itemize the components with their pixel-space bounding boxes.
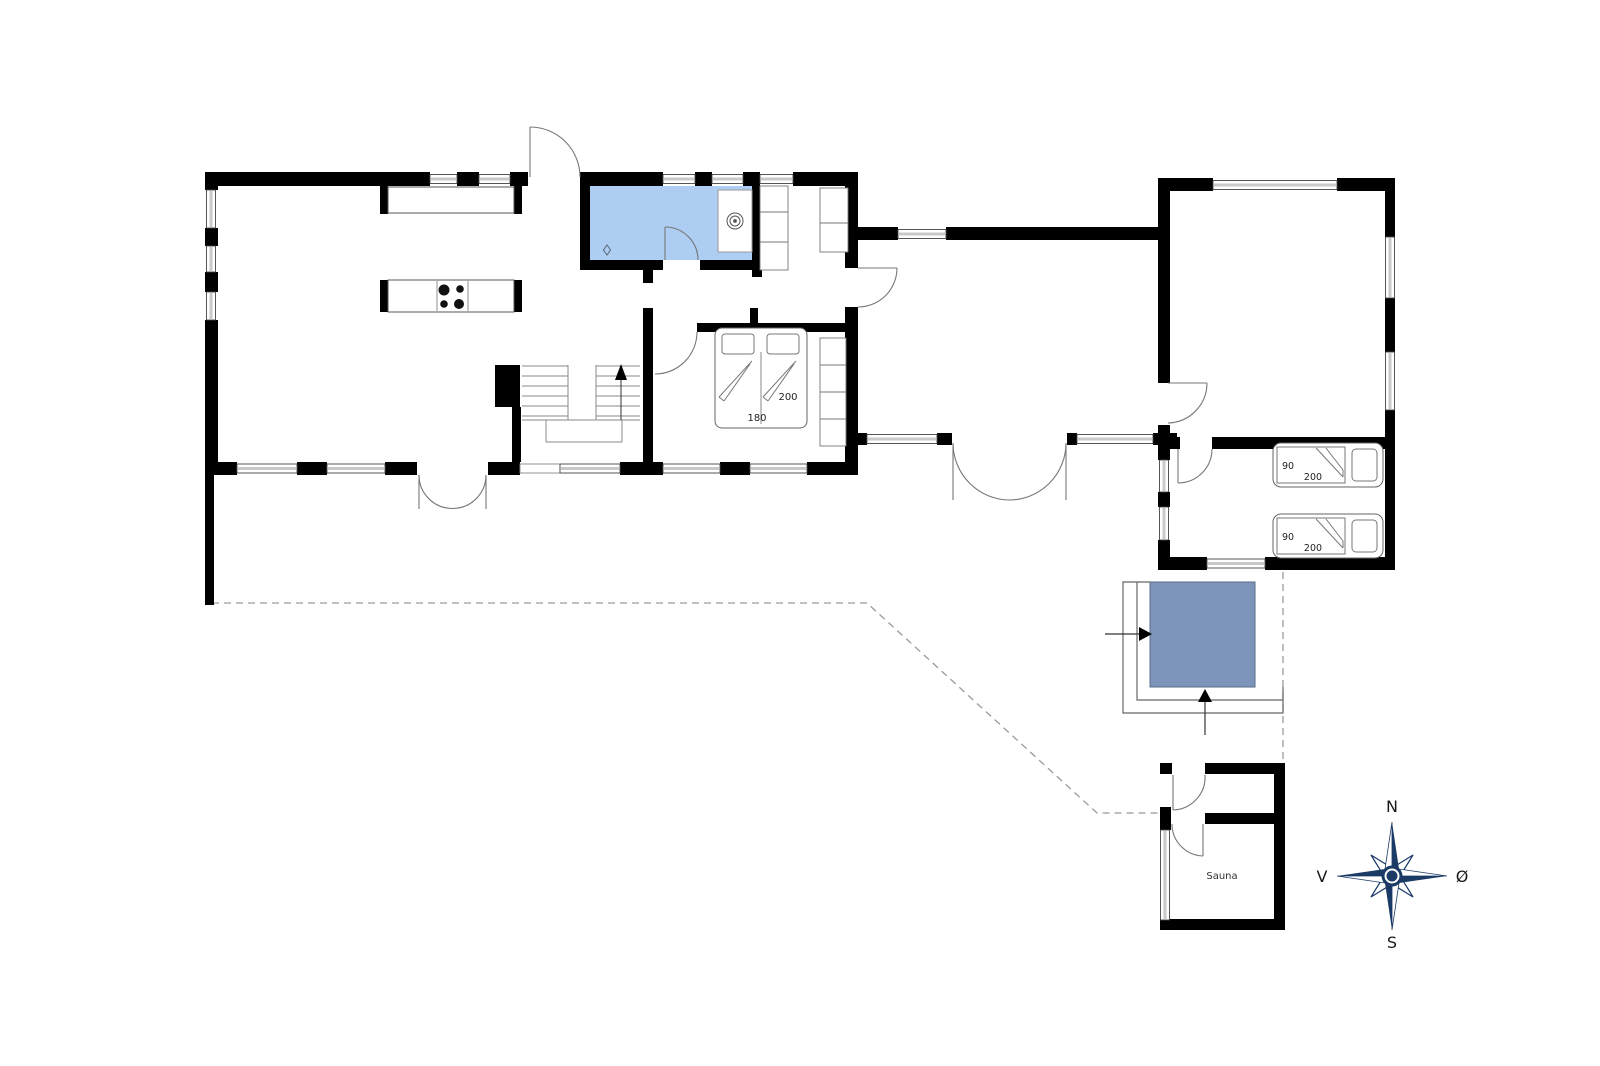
kitchen-counter [388,187,514,213]
hall-to-middle-room-door [858,268,897,307]
window [1077,435,1153,444]
double-bed-width-label: 180 [747,413,766,424]
window [207,246,216,272]
sauna-entry-door [1173,775,1205,810]
floor-plan-page: 200 180 90 200 90 200 Sauna N S V Ø [0,0,1600,1066]
double-bedroom-door [655,332,697,374]
window [1160,507,1169,540]
window [663,175,695,184]
window [760,175,793,184]
window [1161,830,1170,920]
compass-north-label: N [1386,797,1398,816]
window [1160,460,1169,492]
window [898,230,946,239]
single-bed-2-length-label: 200 [1304,543,1322,554]
window [479,175,510,184]
hall-closet [820,188,848,252]
bedroom-closet [820,338,846,446]
annex-bedroom-door [1178,449,1212,483]
window [712,175,743,184]
walls [205,172,1395,930]
window [430,175,457,184]
sauna-label: Sauna [1206,871,1237,882]
single-bed-1-length-label: 200 [1304,472,1322,483]
pillow [1352,449,1377,481]
hot-tub [1150,582,1255,687]
pillow [1352,520,1377,552]
terrace-double-door [419,475,486,509]
kitchen-island-with-stove [388,280,514,312]
single-bed-1-width-label: 90 [1282,461,1294,472]
compass-south-label: S [1387,933,1397,952]
window [1207,559,1265,568]
pillow [767,334,799,354]
window [1386,352,1395,410]
compass-rose-icon: N S V Ø [1317,797,1469,952]
hall-closet [760,186,788,270]
window [560,464,620,473]
double-bed-length-label: 200 [778,392,797,403]
compass-east-label: Ø [1456,867,1469,886]
entry-door [530,127,580,177]
window [207,292,216,320]
window [1213,181,1337,190]
floor-plan-drawing: 200 180 90 200 90 200 Sauna N S V Ø [0,0,1600,1066]
sauna-room-door [1172,824,1203,856]
window [1386,237,1395,298]
pillow [722,334,754,354]
compass-west-label: V [1317,867,1328,886]
middle-room-double-door [953,443,1066,500]
toilet-icon [727,213,743,229]
single-bed-2-width-label: 90 [1282,532,1294,543]
window [867,435,937,444]
window [207,190,216,228]
window [237,464,297,473]
terrace-dashed-outline [212,572,1283,813]
window [750,464,807,473]
window-plain [520,464,560,473]
window [663,464,720,473]
annex-living-door [1168,383,1207,423]
window [327,464,385,473]
fireplace-block [495,365,520,407]
